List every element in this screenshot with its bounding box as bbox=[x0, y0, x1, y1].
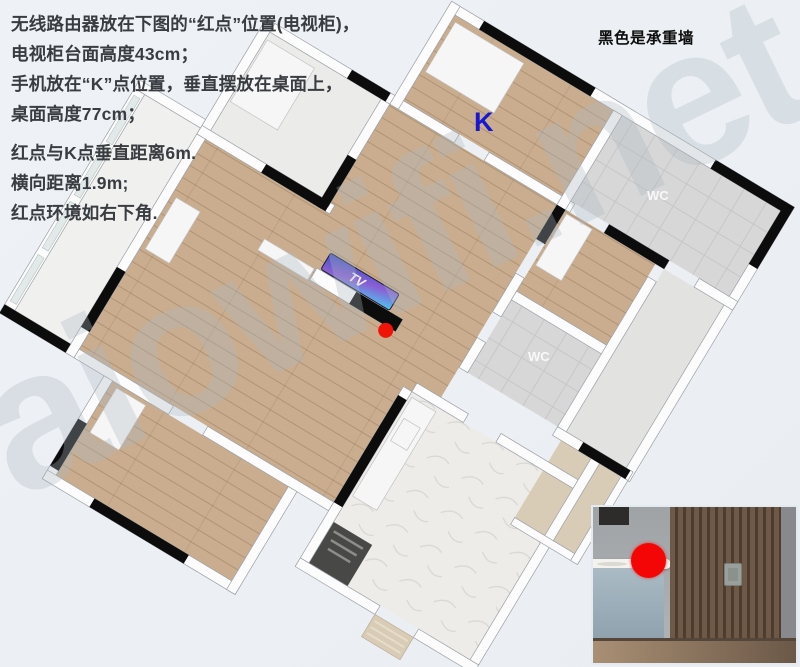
inset-panel-side-wall bbox=[781, 507, 796, 642]
inset-dark-object bbox=[599, 507, 629, 525]
wc-mid-label: WC bbox=[528, 349, 550, 364]
annotation-line: 红点与K点垂直距离6m. bbox=[11, 138, 383, 168]
annotation-line: 红点环境如右下角. bbox=[11, 198, 383, 228]
inset-light-switch bbox=[724, 563, 742, 586]
inset-floor bbox=[593, 638, 796, 663]
annotation-line: 横向距离1.9m; bbox=[11, 168, 383, 198]
annotation-line: 电视柜台面高度43cm； bbox=[11, 39, 383, 69]
wc-top-label: WC bbox=[647, 188, 669, 203]
annotation-line: 桌面高度77cm； bbox=[11, 99, 383, 129]
inset-red-dot-marker bbox=[631, 543, 666, 578]
annotation-block: 无线路由器放在下图的“红点”位置(电视柜)， 电视柜台面高度43cm； 手机放在… bbox=[11, 9, 383, 237]
screenshot-root: TV aiowifi.net K WC WC 无线路由器放在下图的“红点”位置(… bbox=[0, 0, 800, 667]
inset-tv-cabinet-body bbox=[593, 568, 664, 644]
k-point-label: K bbox=[474, 107, 494, 137]
inset-photo-red-dot-environment bbox=[593, 507, 796, 663]
legend-load-bearing: 黑色是承重墙 bbox=[598, 26, 694, 48]
annotation-line: 无线路由器放在下图的“红点”位置(电视柜)， bbox=[11, 9, 383, 39]
inset-countertop-detail bbox=[597, 562, 627, 566]
annotation-paragraph-1: 无线路由器放在下图的“红点”位置(电视柜)， 电视柜台面高度43cm； 手机放在… bbox=[11, 9, 383, 129]
annotation-paragraph-2: 红点与K点垂直距离6m. 横向距离1.9m; 红点环境如右下角. bbox=[11, 138, 383, 228]
annotation-line: 手机放在“K”点位置，垂直摆放在桌面上， bbox=[11, 69, 383, 99]
